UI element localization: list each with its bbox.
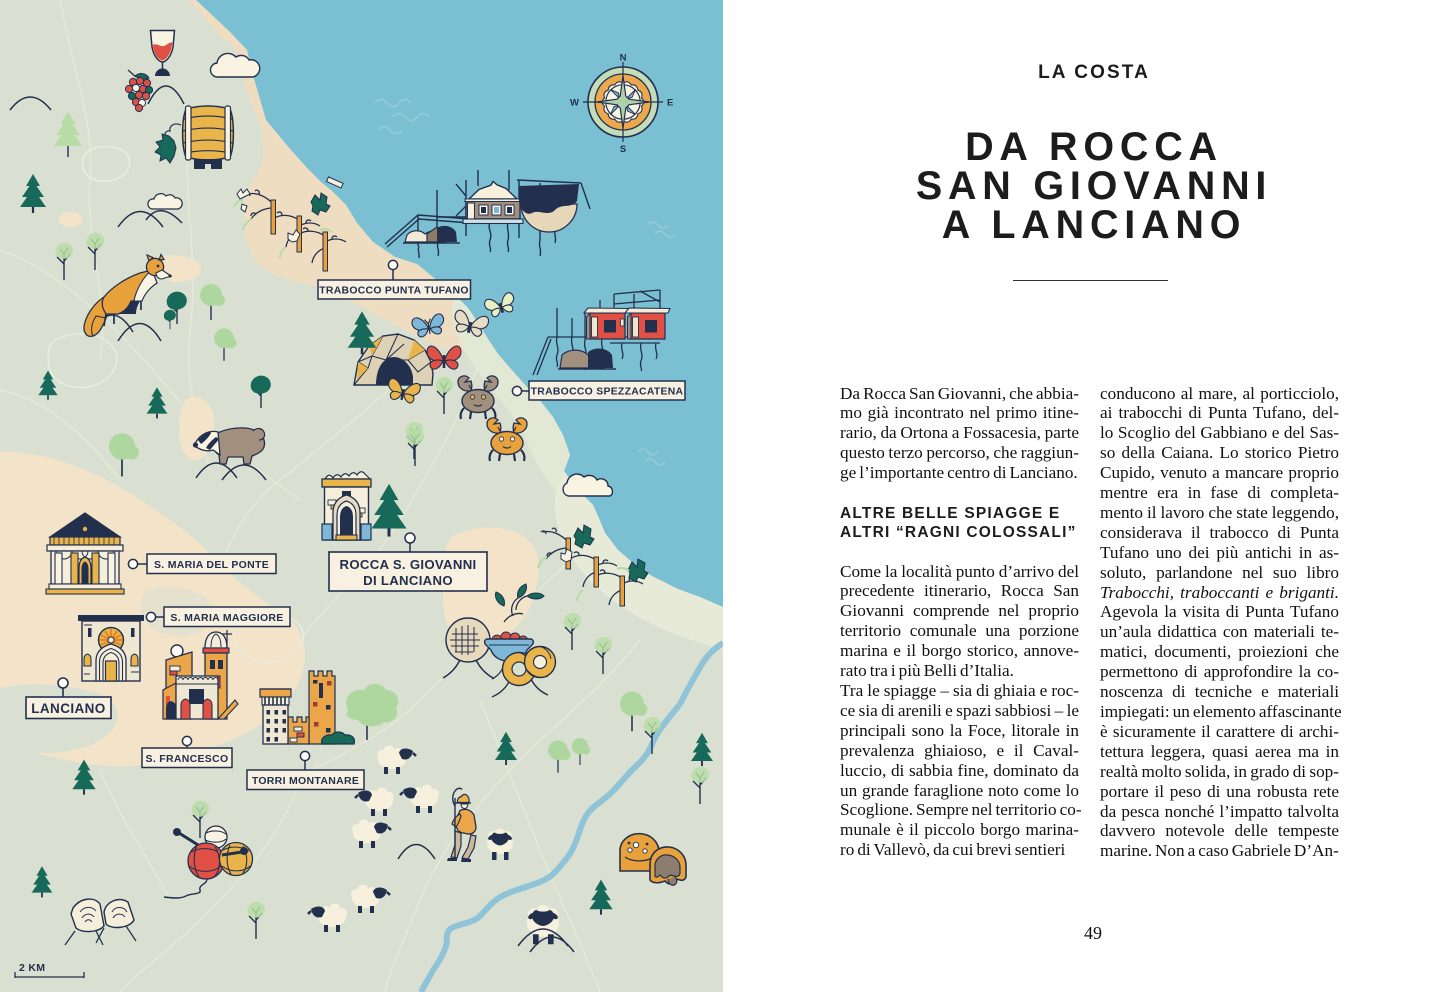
svg-text:N: N	[620, 53, 627, 64]
svg-text:ROCCA S. GIOVANNI: ROCCA S. GIOVANNI	[340, 557, 477, 572]
svg-text:S: S	[620, 144, 626, 155]
svg-text:TRABOCCO SPEZZACATENA: TRABOCCO SPEZZACATENA	[531, 387, 684, 398]
svg-text:W: W	[570, 98, 579, 109]
svg-text:S. FRANCESCO: S. FRANCESCO	[146, 753, 229, 765]
svg-text:2 KM: 2 KM	[19, 962, 45, 974]
svg-text:E: E	[667, 98, 673, 109]
svg-text:DI LANCIANO: DI LANCIANO	[363, 573, 453, 588]
svg-text:TRABOCCO PUNTA TUFANO: TRABOCCO PUNTA TUFANO	[319, 286, 468, 297]
svg-text:S. MARIA MAGGIORE: S. MARIA MAGGIORE	[170, 612, 283, 624]
svg-text:S. MARIA DEL PONTE: S. MARIA DEL PONTE	[154, 559, 269, 571]
svg-text:LANCIANO: LANCIANO	[31, 701, 105, 716]
svg-text:TORRI MONTANARE: TORRI MONTANARE	[252, 775, 359, 787]
